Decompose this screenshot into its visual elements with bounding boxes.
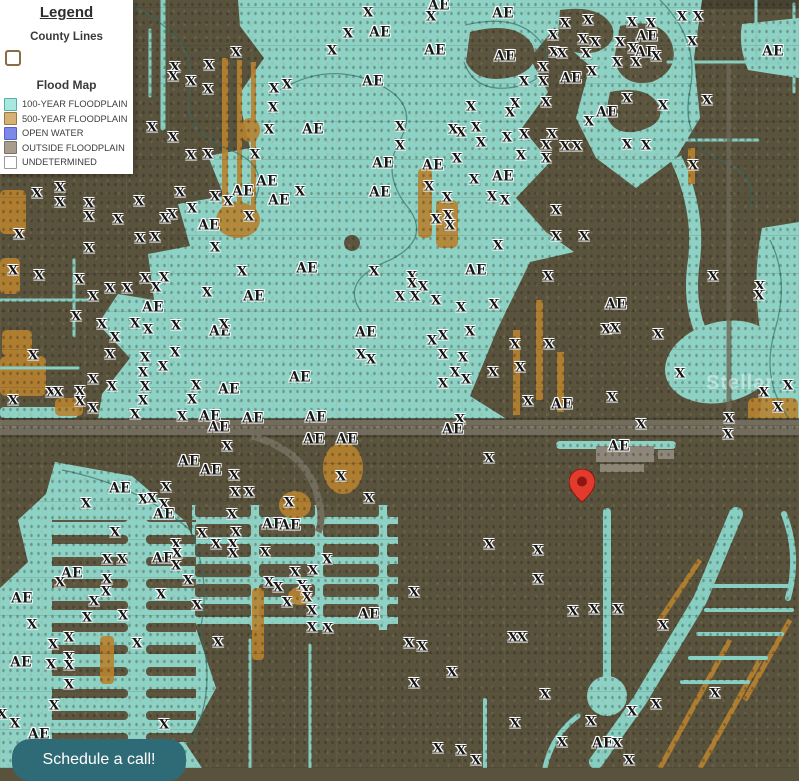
flood-zone-label-x: X: [523, 396, 533, 409]
flood-zone-label-x: X: [101, 586, 111, 599]
flood-zone-label-ae: AE: [218, 383, 240, 397]
legend-item-label: OUTSIDE FLOODPLAIN: [22, 143, 125, 153]
flood-zone-label-ae: AE: [422, 159, 444, 173]
flood-zone-label-x: X: [579, 231, 589, 244]
flood-zone-label-x: X: [651, 51, 661, 64]
flood-zone-label-x: X: [658, 620, 668, 633]
flood-zone-label-x: X: [151, 282, 161, 295]
flood-zone-label-x: X: [510, 339, 520, 352]
flood-zone-label-x: X: [447, 667, 457, 680]
flood-zone-label-x: X: [568, 606, 578, 619]
flood-zone-label-x: X: [424, 181, 434, 194]
flood-zone-label-x: X: [110, 527, 120, 540]
flood-zone-label-x: X: [624, 755, 634, 768]
flood-zone-label-ae: AE: [762, 45, 784, 59]
flood-zone-label-x: X: [118, 610, 128, 623]
flood-zone-label-x: X: [273, 582, 283, 595]
flood-map-heading: Flood Map: [0, 78, 133, 92]
flood-zone-label-x: X: [138, 395, 148, 408]
flood-zone-label-x: X: [723, 429, 733, 442]
legend-item-label: 100-YEAR FLOODPLAIN: [22, 99, 127, 109]
flood-zone-label-x: X: [456, 127, 466, 140]
flood-zone-label-x: X: [500, 195, 510, 208]
flood-zone-label-ae: AE: [355, 326, 377, 340]
flood-zone-label-x: X: [510, 718, 520, 731]
flood-zone-label-ae: AE: [596, 106, 618, 120]
flood-zone-label-x: X: [461, 374, 471, 387]
flood-zone-label-x: X: [438, 349, 448, 362]
flood-zone-label-x: X: [28, 350, 38, 363]
flood-zone-label-x: X: [548, 30, 558, 43]
flood-zone-label-x: X: [107, 381, 117, 394]
flood-zone-label-x: X: [10, 718, 20, 731]
flood-zone-label-ae: AE: [442, 423, 464, 437]
flood-zone-label-x: X: [572, 141, 582, 154]
flood-zone-label-x: X: [64, 632, 74, 645]
flood-zone-label-x: X: [404, 638, 414, 651]
flood-zone-label-x: X: [516, 150, 526, 163]
flood-zone-label-x: X: [269, 83, 279, 96]
flood-zone-label-x: X: [113, 214, 123, 227]
flood-zone-label-x: X: [395, 291, 405, 304]
flood-zone-label-x: X: [452, 153, 462, 166]
legend-item-label: 500-YEAR FLOODPLAIN: [22, 114, 127, 124]
flood-zone-label-x: X: [170, 347, 180, 360]
flood-zone-label-x: X: [557, 737, 567, 750]
flood-zone-label-x: X: [158, 361, 168, 374]
flood-zone-label-x: X: [450, 367, 460, 380]
flood-zone-label-ae: AE: [109, 482, 131, 496]
flood-zone-label-x: X: [187, 203, 197, 216]
flood-zone-label-x: X: [32, 188, 42, 201]
flood-zone-label-x: X: [117, 554, 127, 567]
flood-zone-label-x: X: [466, 101, 476, 114]
flood-zone-label-x: X: [222, 441, 232, 454]
flood-zone-label-x: X: [177, 411, 187, 424]
flood-zone-label-x: X: [583, 15, 593, 28]
flood-zone-label-ae: AE: [494, 50, 516, 64]
flood-zone-label-x: X: [533, 574, 543, 587]
flood-zone-label-x: X: [135, 233, 145, 246]
flood-zone-label-x: X: [34, 270, 44, 283]
flood-zone-label-x: X: [250, 149, 260, 162]
flood-zone-label-ae: AE: [369, 26, 391, 40]
flood-zone-label-x: X: [213, 637, 223, 650]
flood-zone-label-x: X: [754, 290, 764, 303]
flood-zone-label-x: X: [244, 211, 254, 224]
legend-item: OUTSIDE FLOODPLAIN: [0, 141, 133, 156]
flood-zone-label-x: X: [557, 48, 567, 61]
flood-zone-label-x: X: [469, 174, 479, 187]
location-pin-icon[interactable]: [569, 469, 595, 503]
flood-zone-label-x: X: [489, 299, 499, 312]
flood-zone-label-ae: AE: [178, 455, 200, 469]
flood-zone-label-x: X: [81, 498, 91, 511]
flood-zone-label-x: X: [130, 318, 140, 331]
county-lines-swatch: [5, 50, 21, 66]
flood-zone-label-x: X: [231, 47, 241, 60]
flood-zone-label-ae: AE: [232, 185, 254, 199]
flood-zone-label-x: X: [171, 320, 181, 333]
flood-zone-label-x: X: [544, 339, 554, 352]
flood-zone-label-x: X: [192, 600, 202, 613]
flood-zone-label-x: X: [610, 323, 620, 336]
flood-zone-label-x: X: [693, 11, 703, 24]
flood-zone-label-x: X: [395, 121, 405, 134]
flood-zone-label-x: X: [307, 622, 317, 635]
flood-zone-label-x: X: [161, 482, 171, 495]
flood-zone-label-x: X: [688, 160, 698, 173]
flood-zone-label-x: X: [183, 575, 193, 588]
flood-zone-label-x: X: [584, 116, 594, 129]
flood-zone-label-ae: AE: [10, 656, 32, 670]
flood-zone-label-x: X: [471, 755, 481, 768]
flood-zone-label-x: X: [282, 597, 292, 610]
flood-zone-label-x: X: [147, 493, 157, 506]
flood-zone-label-x: X: [560, 18, 570, 31]
flood-zone-label-ae: AE: [305, 411, 327, 425]
flood-zone-label-ae: AE: [492, 170, 514, 184]
flood-zone-label-x: X: [456, 745, 466, 758]
flood-zone-label-x: X: [186, 150, 196, 163]
flood-zone-label-ae: AE: [279, 519, 301, 533]
flood-zone-label-x: X: [134, 196, 144, 209]
flood-zone-label-x: X: [219, 319, 229, 332]
flood-zone-label-x: X: [122, 283, 132, 296]
flood-zone-label-x: X: [622, 139, 632, 152]
flood-zone-label-ae: AE: [242, 412, 264, 426]
flood-zone-label-x: X: [476, 137, 486, 150]
flood-zone-label-x: X: [533, 545, 543, 558]
flood-zone-label-x: X: [613, 604, 623, 617]
flood-zone-label-x: X: [687, 36, 697, 49]
flood-zone-label-ae: AE: [303, 433, 325, 447]
flood-zone-label-x: X: [74, 274, 84, 287]
flood-zone-label-x: X: [551, 231, 561, 244]
flood-zone-label-x: X: [356, 349, 366, 362]
flood-zone-label-x: X: [227, 509, 237, 522]
flood-zone-label-x: X: [488, 367, 498, 380]
flood-zone-label-x: X: [708, 271, 718, 284]
flood-zone-label-x: X: [515, 362, 525, 375]
flood-zone-label-x: X: [327, 45, 337, 58]
flood-zone-label-x: X: [105, 283, 115, 296]
legend-swatch: [4, 112, 17, 125]
flood-zone-label-x: X: [505, 107, 515, 120]
flood-zone-label-x: X: [156, 589, 166, 602]
flood-zone-label-x: X: [102, 554, 112, 567]
flood-zone-label-x: X: [168, 71, 178, 84]
flood-zone-label-x: X: [409, 587, 419, 600]
flood-zone-label-x: X: [641, 140, 651, 153]
flood-zone-label-x: X: [395, 140, 405, 153]
flood-zone-label-ae: AE: [200, 464, 222, 478]
legend-item: 500-YEAR FLOODPLAIN: [0, 112, 133, 127]
flood-zone-label-x: X: [417, 641, 427, 654]
flood-zone-label-ae: AE: [362, 75, 384, 89]
flood-zone-label-x: X: [540, 689, 550, 702]
flood-zone-label-x: X: [159, 719, 169, 732]
flood-zone-label-x: X: [369, 266, 379, 279]
flood-zone-label-x: X: [55, 577, 65, 590]
flood-zone-label-ae: AE: [296, 262, 318, 276]
flood-zone-label-x: X: [427, 335, 437, 348]
flood-zone-label-x: X: [210, 242, 220, 255]
flood-zone-label-x: X: [203, 149, 213, 162]
flood-zone-label-x: X: [653, 329, 663, 342]
flood-zone-label-x: X: [138, 367, 148, 380]
flood-zone-label-x: X: [130, 409, 140, 422]
flood-zone-label-x: X: [295, 186, 305, 199]
flood-zone-label-x: X: [710, 688, 720, 701]
flood-zone-label-x: X: [702, 95, 712, 108]
flood-zone-label-x: X: [230, 487, 240, 500]
flood-zone-label-x: X: [438, 330, 448, 343]
flood-zone-label-ae: AE: [289, 371, 311, 385]
flood-zone-label-x: X: [160, 213, 170, 226]
flood-zone-label-ae: AE: [551, 398, 573, 412]
flood-zone-label-x: X: [612, 738, 622, 751]
flood-zone-label-x: X: [88, 374, 98, 387]
flood-zone-label-x: X: [538, 76, 548, 89]
flood-zone-label-ae: AE: [336, 433, 358, 447]
flood-zone-label-x: X: [175, 187, 185, 200]
flood-zone-label-x: X: [71, 311, 81, 324]
flood-zone-label-x: X: [431, 295, 441, 308]
flood-zone-label-x: X: [197, 528, 207, 541]
flood-zone-label-x: X: [0, 709, 7, 722]
flood-zone-label-x: X: [27, 619, 37, 632]
legend-item: OPEN WATER: [0, 126, 133, 141]
flood-zone-label-x: X: [323, 623, 333, 636]
flood-zone-label-x: X: [366, 354, 376, 367]
flood-zone-label-x: X: [64, 679, 74, 692]
flood-zone-label-x: X: [228, 548, 238, 561]
flood-zone-label-x: X: [622, 93, 632, 106]
flood-zone-label-x: X: [268, 102, 278, 115]
flood-zone-label-x: X: [8, 395, 18, 408]
flood-zone-label-x: X: [607, 392, 617, 405]
legend-item-label: UNDETERMINED: [22, 157, 97, 167]
flood-zone-label-x: X: [471, 122, 481, 135]
flood-zone-label-x: X: [237, 266, 247, 279]
flood-zone-label-x: X: [204, 60, 214, 73]
flood-zone-label-x: X: [456, 302, 466, 315]
legend-swatch: [4, 127, 17, 140]
flood-zone-label-x: X: [759, 387, 769, 400]
flood-zone-label-x: X: [465, 326, 475, 339]
flood-zone-label-x: X: [14, 229, 24, 242]
flood-zone-label-x: X: [363, 7, 373, 20]
flood-zone-label-x: X: [140, 273, 150, 286]
flood-zone-label-x: X: [431, 214, 441, 227]
flood-zone-label-x: X: [143, 324, 153, 337]
flood-zone-label-x: X: [49, 700, 59, 713]
flood-zone-label-ae: AE: [142, 301, 164, 315]
flood-zone-label-ae: AE: [605, 298, 627, 312]
flood-zone-label-x: X: [55, 182, 65, 195]
flood-zone-label-x: X: [89, 596, 99, 609]
flood-zone-label-x: X: [211, 539, 221, 552]
legend-swatch: [4, 156, 17, 169]
flood-zone-label-x: X: [502, 132, 512, 145]
flood-zone-label-x: X: [260, 547, 270, 560]
flood-zone-label-x: X: [150, 232, 160, 245]
flood-zone-label-x: X: [590, 37, 600, 50]
flood-zone-label-x: X: [438, 378, 448, 391]
flood-zone-label-x: X: [244, 487, 254, 500]
flood-zone-label-x: X: [88, 403, 98, 416]
county-lines-heading: County Lines: [0, 31, 133, 43]
flood-zone-label-x: X: [203, 84, 213, 97]
flood-zone-label-x: X: [336, 471, 346, 484]
flood-zone-label-x: X: [543, 271, 553, 284]
flood-zone-label-x: X: [84, 243, 94, 256]
flood-zone-label-x: X: [517, 632, 527, 645]
flood-zone-label-x: X: [538, 62, 548, 75]
flood-zone-label-x: X: [191, 380, 201, 393]
flood-zone-label-x: X: [84, 211, 94, 224]
schedule-call-button[interactable]: Schedule a call!: [12, 739, 186, 781]
flood-zone-label-x: X: [541, 97, 551, 110]
flood-zone-label-x: X: [409, 678, 419, 691]
flood-zone-label-x: X: [675, 368, 685, 381]
flood-zone-label-x: X: [658, 100, 668, 113]
flood-zone-label-x: X: [433, 743, 443, 756]
flood-zone-label-x: X: [586, 716, 596, 729]
flood-zone-label-x: X: [322, 554, 332, 567]
flood-zone-label-x: X: [97, 319, 107, 332]
flood-zone-label-x: X: [426, 11, 436, 24]
flood-zone-label-x: X: [75, 396, 85, 409]
flood-zone-label-x: X: [519, 129, 529, 142]
flood-zone-label-x: X: [202, 287, 212, 300]
flood-zone-label-x: X: [210, 191, 220, 204]
flood-zone-label-ae: AE: [372, 157, 394, 171]
flood-zone-label-x: X: [589, 604, 599, 617]
flood-zone-label-x: X: [458, 352, 468, 365]
flood-zone-label-ae: AE: [358, 608, 380, 622]
flood-zone-label-x: X: [487, 191, 497, 204]
legend-swatch: [4, 141, 17, 154]
legend-title: Legend: [0, 4, 133, 21]
flood-zone-label-x: X: [82, 612, 92, 625]
flood-zone-label-x: X: [140, 352, 150, 365]
flood-zone-label-x: X: [677, 11, 687, 24]
flood-zone-label-x: X: [229, 470, 239, 483]
flood-zone-label-x: X: [364, 493, 374, 506]
flood-zone-label-x: X: [105, 349, 115, 362]
flood-zone-label-x: X: [53, 387, 63, 400]
flood-zone-label-x: X: [110, 332, 120, 345]
flood-zone-label-x: X: [541, 153, 551, 166]
flood-zone-label-ae: AE: [11, 592, 33, 606]
flood-zone-label-x: X: [307, 605, 317, 618]
flood-zone-label-ae: AE: [198, 219, 220, 233]
flood-zone-label-x: X: [578, 34, 588, 47]
flood-zone-label-x: X: [612, 57, 622, 70]
flood-zone-label-x: X: [581, 48, 591, 61]
flood-zone-label-x: X: [147, 122, 157, 135]
flood-zone-label-x: X: [140, 381, 150, 394]
flood-zone-label-x: X: [223, 196, 233, 209]
flood-zone-label-x: X: [651, 699, 661, 712]
flood-zone-label-ae: AE: [208, 421, 230, 435]
flood-zone-label-x: X: [64, 660, 74, 673]
map-legend-panel: Legend County Lines Flood Map 100-YEAR F…: [0, 0, 133, 174]
flood-zone-label-ae: AE: [243, 290, 265, 304]
legend-item: 100-YEAR FLOODPLAIN: [0, 97, 133, 112]
flood-zone-label-ae: AE: [592, 737, 614, 751]
flood-zone-label-x: X: [186, 76, 196, 89]
flood-zone-label-x: X: [48, 639, 58, 652]
flood-zone-label-x: X: [445, 220, 455, 233]
flood-zone-label-x: X: [282, 79, 292, 92]
flood-zone-label-x: X: [132, 638, 142, 651]
flood-zone-label-ae: AE: [153, 508, 175, 522]
legend-item-label: OPEN WATER: [22, 128, 83, 138]
flood-zone-label-x: X: [88, 291, 98, 304]
flood-zone-label-x: X: [615, 37, 625, 50]
flood-zone-label-x: X: [284, 497, 294, 510]
flood-zone-label-x: X: [636, 419, 646, 432]
flood-zone-label-x: X: [773, 402, 783, 415]
flood-zone-label-ae: AE: [560, 72, 582, 86]
flood-zone-label-ae: AE: [424, 44, 446, 58]
legend-swatch: [4, 98, 17, 111]
flood-zone-label-x: X: [343, 28, 353, 41]
flood-zone-label-ae: AE: [268, 194, 290, 208]
flood-zone-label-x: X: [442, 192, 452, 205]
flood-zone-label-x: X: [587, 66, 597, 79]
flood-zone-label-x: X: [46, 659, 56, 672]
flood-zone-label-ae: AE: [369, 186, 391, 200]
flood-zone-label-x: X: [484, 453, 494, 466]
flood-zone-label-x: X: [8, 265, 18, 278]
flood-zone-label-x: X: [484, 539, 494, 552]
flood-zone-label-x: X: [308, 565, 318, 578]
flood-zone-label-x: X: [493, 240, 503, 253]
flood-zone-label-ae: AE: [302, 123, 324, 137]
flood-map-legend-items: 100-YEAR FLOODPLAIN500-YEAR FLOODPLAINOP…: [0, 97, 133, 170]
flood-zone-label-x: X: [627, 706, 637, 719]
legend-item: UNDETERMINED: [0, 155, 133, 170]
flood-zone-label-x: X: [519, 76, 529, 89]
flood-zone-label-x: X: [187, 394, 197, 407]
flood-zone-label-ae: AE: [492, 7, 514, 21]
flood-zone-label-x: X: [551, 205, 561, 218]
flood-zone-label-ae: AE: [636, 30, 658, 44]
flood-zone-label-x: X: [171, 560, 181, 573]
flood-zone-label-ae: AE: [608, 440, 630, 454]
flood-zone-label-ae: AE: [465, 264, 487, 278]
flood-zone-label-x: X: [631, 57, 641, 70]
flood-zone-label-x: X: [724, 413, 734, 426]
flood-zone-label-x: X: [264, 124, 274, 137]
flood-zone-label-x: X: [55, 197, 65, 210]
flood-zone-label-x: X: [410, 291, 420, 304]
flood-zone-label-x: X: [783, 380, 793, 393]
flood-zone-label-x: X: [560, 141, 570, 154]
flood-zone-label-x: X: [168, 132, 178, 145]
flood-zone-label-ae: AE: [256, 175, 278, 189]
